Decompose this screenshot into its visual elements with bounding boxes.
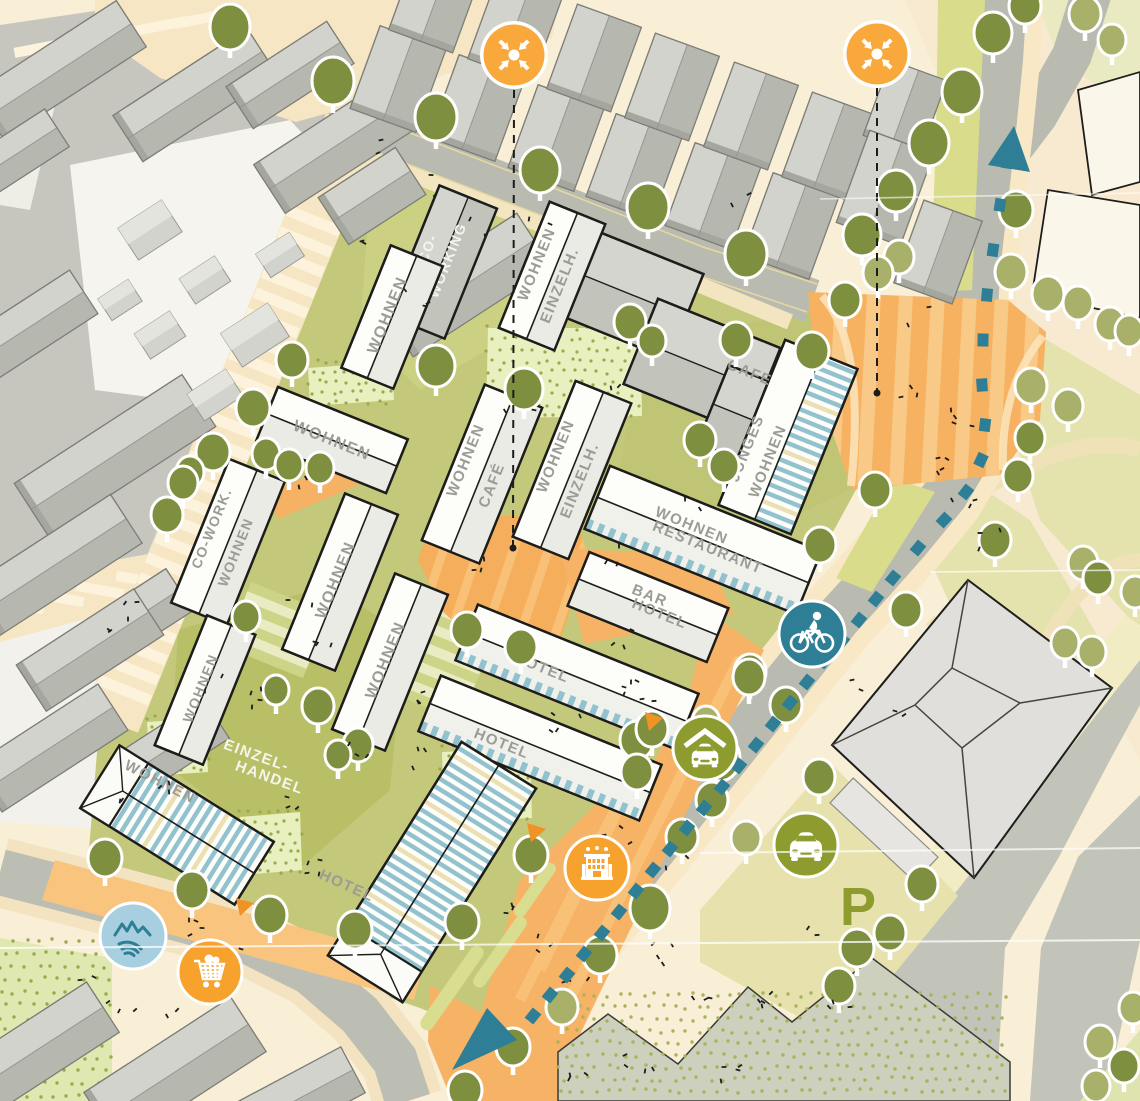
svg-text:P: P bbox=[840, 877, 876, 937]
